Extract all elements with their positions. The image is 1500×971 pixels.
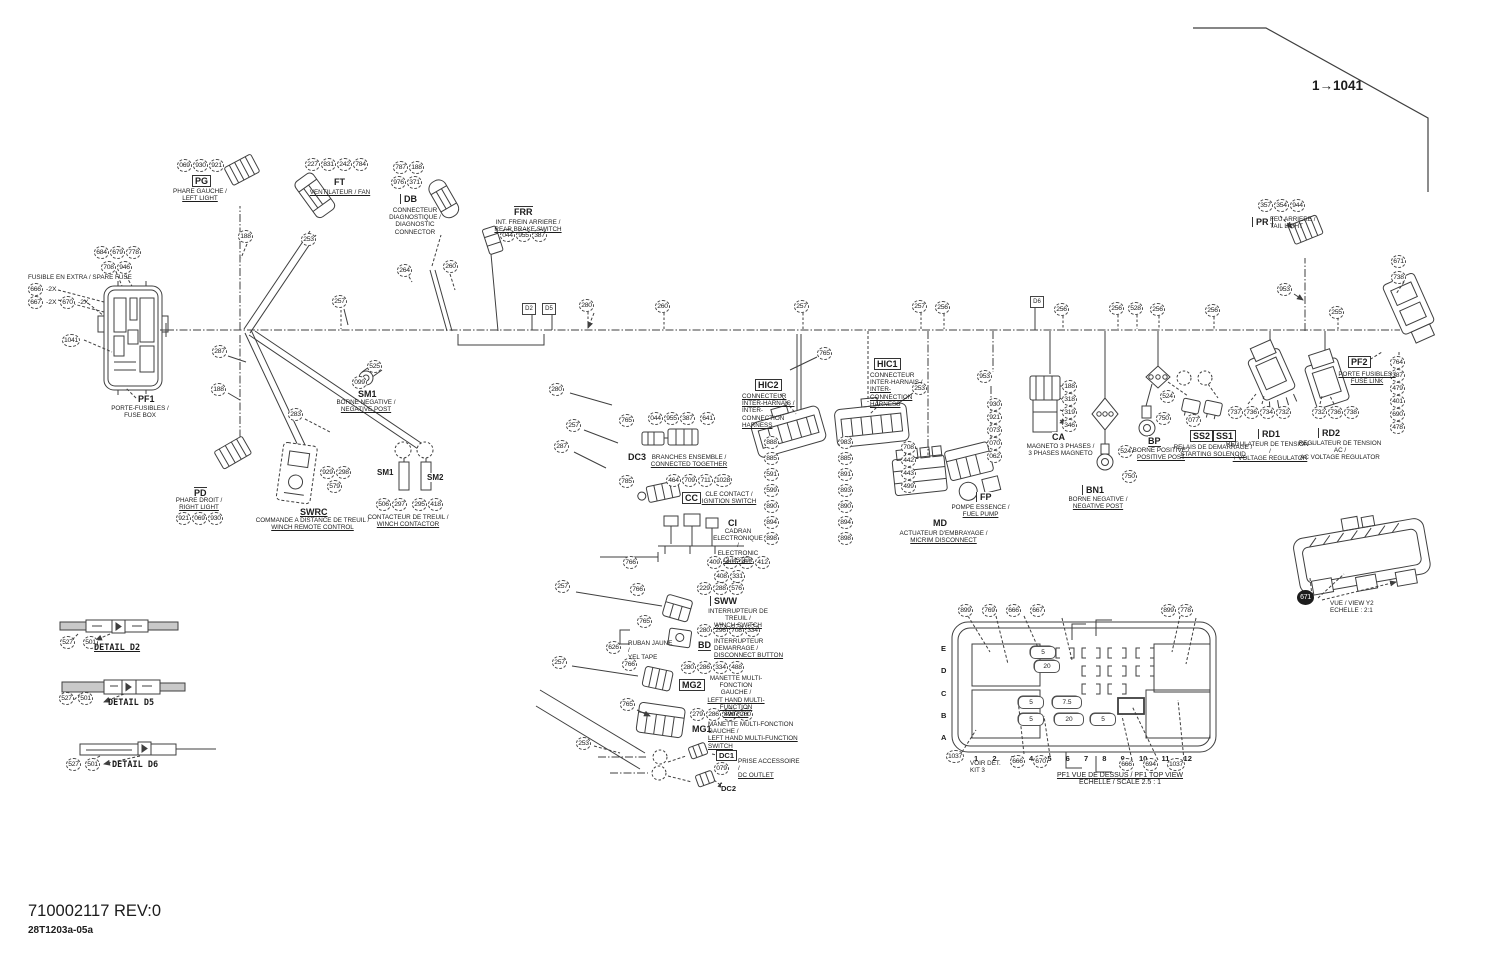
callout-chip: 953 <box>977 370 992 383</box>
pd-callouts: 921069930 <box>176 512 223 525</box>
callout-chip: 890 <box>838 500 853 513</box>
wire-callout: 188 <box>238 230 253 243</box>
callout-chip: 286 <box>697 661 712 674</box>
callout-chip: 295 <box>412 498 427 511</box>
callout-chip: 077 <box>1186 414 1201 427</box>
frr-tag: FRR <box>514 206 533 217</box>
dc3-tag: DC3 <box>628 452 646 462</box>
wire-callout: 287 <box>554 440 569 453</box>
ft-tag: FT <box>334 177 345 187</box>
rd2-label: REGULATEUR DE TENSION AC /AC VOLTAGE REG… <box>1295 440 1385 462</box>
grid-label: 7 <box>1084 754 1088 763</box>
callout-chip: 778 <box>126 246 141 259</box>
callout-chip: 073 <box>987 424 1002 437</box>
bp-tag: BP <box>1148 436 1161 447</box>
callout-chip: 930 <box>193 159 208 172</box>
callout-chip: 346 <box>1062 419 1077 432</box>
callout-chip: 736 <box>1328 406 1343 419</box>
callout-chip: 229 <box>697 582 712 595</box>
callout-chip: 983 <box>838 436 853 449</box>
callout-chip: 1037 <box>946 750 964 763</box>
pf1top-row-letters: EDCBA <box>941 644 946 742</box>
callout-chip: 750 <box>1156 412 1171 425</box>
callout-chip: 666 <box>1010 755 1025 768</box>
pr-label: FEU ARRIERE /TAIL LIGHT <box>1270 216 1328 230</box>
callout-chip: 694 <box>1143 758 1158 771</box>
mg2-label: MANETTE MULTI-FONCTIONGAUCHE /LEFT HAND … <box>697 675 775 718</box>
pf1-callouts-1: 684679778 <box>94 246 141 259</box>
mg2-callouts: 280286334488 <box>681 661 744 674</box>
wire-callout: 260 <box>655 300 670 313</box>
callout-chip: 442 <box>901 454 916 467</box>
callout-chip: 1037 <box>1167 758 1185 771</box>
callout-chip: 443 <box>901 467 916 480</box>
callout-chip: 464 <box>666 474 681 487</box>
bus-detail-marker: D6 <box>1030 296 1044 308</box>
callout-chip: 070 <box>987 437 1002 450</box>
callout-chip: 099 <box>352 376 367 389</box>
wire-callout: 953 <box>1277 283 1292 296</box>
callout-chip: 784 <box>353 158 368 171</box>
db-tag: DB <box>400 194 417 204</box>
callout-chip: 888 <box>764 436 779 449</box>
callout-chip: 387 <box>680 412 695 425</box>
wire-callout: 766 <box>623 556 638 569</box>
callout-chip: 666 <box>1119 758 1134 771</box>
pf1-spare-note: FUSIBLE EN EXTRA / SPARE FUSE <box>28 274 138 281</box>
pg-callouts: 069930921 <box>177 159 224 172</box>
bus-detail-marker: D2 <box>522 303 536 315</box>
pf2-callouts-top: 671738 <box>1391 255 1406 284</box>
callout-chip: 297 <box>392 498 407 511</box>
wire-callout: 283 <box>288 408 303 421</box>
callout-chip: 357 <box>1258 199 1273 212</box>
tape-note: RUBAN JAUNE /YEL TAPE <box>628 640 673 662</box>
callout-chip: 418 <box>428 498 443 511</box>
callout-chip: 1041 <box>62 334 80 347</box>
callout-chip: 894 <box>764 516 779 529</box>
callout-chip: 524 <box>1160 390 1175 403</box>
fuse-value: 7.5 <box>1052 696 1082 709</box>
fuse-value: 5 <box>1018 713 1044 726</box>
pf2-chain: 764387479401690478 <box>1390 356 1405 434</box>
callout-chip: 501 <box>85 758 100 771</box>
pf1top-note: VOIR DET.KIT 3 <box>970 760 1010 774</box>
callout-chip: 044 <box>648 412 663 425</box>
callout-chip: 576 <box>729 582 744 595</box>
winch-callouts-1: 506297 <box>376 498 407 511</box>
callout-chip: 764 <box>1390 356 1405 369</box>
callout-chip: 525 <box>367 360 382 373</box>
callout-chip: 591 <box>764 468 779 481</box>
wire-callout: 766 <box>630 583 645 596</box>
callout-chip: 069 <box>192 512 207 525</box>
callout-chip: 298 <box>336 466 351 479</box>
callout-chip: 890 <box>764 500 779 513</box>
callout-chip: 227 <box>305 158 320 171</box>
ca-label: MAGNETO 3 PHASES /3 PHASES MAGNETO <box>1018 443 1103 457</box>
callout-chip: 667 <box>1030 604 1045 617</box>
callout-chip: 488 <box>729 661 744 674</box>
pg-label: PHARE GAUCHE /LEFT LIGHT <box>160 188 240 202</box>
swrc-label: COMMANDE A DISTANCE DE TREUIL /WINCH REM… <box>250 517 375 531</box>
callout-chip: 899 <box>1161 604 1176 617</box>
wire-callout: 260 <box>443 260 458 273</box>
callout-chip: 334 <box>713 661 728 674</box>
detail-d6-callouts: 527501 <box>66 758 100 771</box>
callout-chip: 242 <box>337 158 352 171</box>
callout-chip: 401 <box>1390 395 1405 408</box>
callout-chip: 709 <box>682 474 697 487</box>
callout-chip: 946 <box>117 261 132 274</box>
pd-label: PHARE DROIT /RIGHT LIGHT <box>168 497 230 511</box>
callout-chip: 893 <box>838 484 853 497</box>
callout-chip: 955 <box>664 412 679 425</box>
wire-callout: 257 <box>566 419 581 432</box>
callout-chip: 885 <box>838 452 853 465</box>
callout-chip: 944 <box>1290 199 1305 212</box>
callout-chip: 079 <box>714 762 729 775</box>
wire-callout: 280 <box>549 383 564 396</box>
wire-callout: 765 <box>817 347 832 360</box>
grid-label: B <box>941 711 946 720</box>
fuse-value: 5 <box>1030 646 1056 659</box>
callout-chip: 478 <box>1390 421 1405 434</box>
wire-callout: 256 <box>1054 303 1069 316</box>
callout-chip: 288 <box>713 582 728 595</box>
callout-chip: 506 <box>376 498 391 511</box>
callout-chip: 736 <box>1244 406 1259 419</box>
callout-chip: 885 <box>764 452 779 465</box>
fuse-value: 5 <box>1090 713 1116 726</box>
rd1-tag: RD1 <box>1258 429 1280 439</box>
wire-callout: 188 <box>211 383 226 396</box>
callout-chip: 750 <box>1122 470 1137 483</box>
md-tag: MD <box>933 518 947 528</box>
db-callouts-1: 787188 <box>393 161 424 174</box>
grid-label: E <box>941 644 946 653</box>
bn1-tag: BN1 <box>1082 485 1104 495</box>
callout-chip: 734 <box>1260 406 1275 419</box>
callout-chip: 894 <box>838 516 853 529</box>
pf2-label: PORTE FUSIBLES /FUSE LINK <box>1332 371 1402 385</box>
callout-chip: 929 <box>320 466 335 479</box>
callout-chip: 626 <box>606 641 621 654</box>
rd2-callouts: 732736738 <box>1312 406 1359 419</box>
callout-chip: 499 <box>901 480 916 493</box>
cc-label: CLE CONTACT /IGNITION SWITCH <box>698 491 760 505</box>
cc-callouts: 4647097111028 <box>666 474 732 487</box>
callout-chip: 711 <box>698 474 713 487</box>
fp-tag: FP <box>976 492 992 502</box>
sm1-neg-label: BORNE NEGATIVE /NEGATIVE POST <box>330 399 402 413</box>
fp-chain: 930921073070062 <box>987 398 1002 463</box>
callout-chip: 891 <box>838 468 853 481</box>
callout-chip: 667 <box>28 296 43 309</box>
callout-chip: 188 <box>1062 380 1077 393</box>
wire-callout: 253 <box>576 737 591 750</box>
wire-callout: 785 <box>619 475 634 488</box>
detail-d2-label: DETAIL D2 <box>94 643 140 653</box>
md-label: ACTUATEUR D'EMBRAYAGE /MICRIM DISCONNECT <box>896 530 991 544</box>
wire-callout: 256 <box>1150 303 1165 316</box>
callout-chip: 671 <box>1391 255 1406 268</box>
callout-chip: 831 <box>321 158 336 171</box>
wiring-artwork <box>0 0 1500 971</box>
pf1top-callouts-top: 899769666667 <box>958 604 1045 617</box>
detail-d5-label: DETAIL D5 <box>108 698 154 708</box>
bd-tag: BD <box>698 640 711 651</box>
callout-chip: 318 <box>1062 393 1077 406</box>
wire-callout: 257 <box>332 295 347 308</box>
pg-tag: PG <box>192 175 211 187</box>
wire-callout: 765 <box>637 615 652 628</box>
callout-chip: 679 <box>110 246 125 259</box>
callout-chip: 684 <box>94 246 109 259</box>
hic1-chain: 983885891893890894898 <box>838 436 853 545</box>
detail-d6-label: DETAIL D6 <box>112 760 158 770</box>
pf1-tag: PF1 <box>138 394 155 404</box>
winch-sm1-tag: SM1 <box>377 468 393 477</box>
fp-label: POMPE ESSENCE /FUEL PUMP <box>938 504 1023 518</box>
callout-chip: 666 <box>28 283 43 296</box>
pf1-callouts-2: 708946 <box>101 261 132 274</box>
pf1-spare-1: 666-2X <box>28 283 57 296</box>
hic2-tag: HIC2 <box>755 379 782 391</box>
callout-chip: 062 <box>987 450 1002 463</box>
mg1-label: MANETTE MULTI-FONCTION GAUCHE /LEFT HAND… <box>708 721 813 750</box>
callout-chip: 069 <box>177 159 192 172</box>
wire-callout: 257 <box>912 300 927 313</box>
md-chain: 708442443499 <box>901 441 916 493</box>
detail-d2-callouts: 527501 <box>60 636 98 649</box>
grid-label: D <box>941 666 946 675</box>
callout-chip: 738 <box>1391 271 1406 284</box>
callout-chip: 280 <box>681 661 696 674</box>
pf1top-title: PF1 VUE DE DESSUS / PF1 TOP VIEWECHELLE … <box>1010 772 1230 786</box>
ft-label: VENTILATEUR / FAN <box>300 189 380 196</box>
wire-callout: 287 <box>212 345 227 358</box>
bus-detail-marker: D5 <box>542 303 556 315</box>
pf1-label: PORTE-FUSIBLES /FUSE BOX <box>104 405 176 419</box>
pf1top-callouts-bottom-right: 6666941037 <box>1119 758 1185 771</box>
grid-label: 6 <box>1066 754 1070 763</box>
callout-chip: 737 <box>1228 406 1243 419</box>
callout-chip: 921 <box>987 411 1002 424</box>
callout-chip: 641 <box>700 412 715 425</box>
callout-chip: 787 <box>393 161 408 174</box>
wire-callout: 255 <box>1329 306 1344 319</box>
wire-callout: 253 <box>301 233 316 246</box>
callout-chip: 738 <box>1344 406 1359 419</box>
dc1-tag: DC1 <box>716 750 737 761</box>
callout-chip: 670 <box>60 296 75 309</box>
grid-label: A <box>941 733 946 742</box>
sm1-neg-tag: SM1 <box>358 389 377 399</box>
callout-chip: 666 <box>1006 604 1021 617</box>
part-number: 710002117 REV:0 <box>28 902 161 921</box>
winch-label: CONTACTEUR DE TREUIL /WINCH CONTACTOR <box>358 514 458 528</box>
callout-chip: 898 <box>838 532 853 545</box>
fuse-value: 5 <box>1018 696 1044 709</box>
callout-chip: 501 <box>78 692 93 705</box>
ft-callouts: 227831242784 <box>305 158 368 171</box>
callout-chip: 690 <box>1390 408 1405 421</box>
pf1-spare-2: 667-2X <box>28 296 57 309</box>
callout-chip: 188 <box>409 161 424 174</box>
ci-tag: CI <box>728 518 737 528</box>
callout-chip: 527 <box>66 758 81 771</box>
doc-code: 28T1203a-05a <box>28 925 93 936</box>
hic1-tag: HIC1 <box>874 358 901 370</box>
callout-chip: 921 <box>209 159 224 172</box>
winch-sm2-tag: SM2 <box>427 473 443 482</box>
callout-chip: 732 <box>1312 406 1327 419</box>
wire-callout: 256 <box>1205 304 1220 317</box>
callout-chip: 1028 <box>714 474 732 487</box>
db-callouts-2: 976371 <box>391 176 422 189</box>
sww-label: INTERRUPTEUR DE TREUIL /WINCH SWITCH <box>698 608 778 630</box>
wire-callout: 765 <box>619 414 634 427</box>
fuse-value: 20 <box>1054 713 1084 726</box>
callout-chip: 671 <box>1297 590 1314 605</box>
callout-chip: 930 <box>208 512 223 525</box>
ss2-tag: SS2 <box>1190 430 1213 442</box>
grid-label: 8 <box>1102 754 1106 763</box>
ci-label: CADRANELECTRONIQUE /ELECTRONICCLUSTER <box>712 528 764 564</box>
winch-callouts-2: 295418 <box>412 498 443 511</box>
sww-callouts: 229288576 <box>697 582 744 595</box>
callout-chip: 769 <box>982 604 997 617</box>
callout-chip: 579 <box>327 480 342 493</box>
wire-callout: 257 <box>552 656 567 669</box>
pf1top-callouts-top-right: 899778 <box>1161 604 1193 617</box>
dc1-label: PRISE ACCESSOIRE /DC OUTLET <box>738 758 800 780</box>
callout-chip: 976 <box>391 176 406 189</box>
rd2-tag: RD2 <box>1318 428 1340 438</box>
rd1-callouts: 737736734732 <box>1228 406 1291 419</box>
wiring-diagram-page: { "page":{"corner_ref":"1→1041","part_nu… <box>0 0 1500 971</box>
y2-view-label: VUE / VIEW Y2ECHELLE : 2:1 <box>1330 600 1400 614</box>
callout-chip: 930 <box>987 398 1002 411</box>
callout-chip: 670 <box>1033 755 1048 768</box>
dc3-label: BRANCHES ENSEMBLE /CONNECTED TOGETHER <box>650 454 728 468</box>
callout-chip: 371 <box>407 176 422 189</box>
wire-callout: 257 <box>555 580 570 593</box>
fuse-value: 20 <box>1034 660 1060 673</box>
swrc-tag: SWRC <box>300 507 328 517</box>
wire-callout: 257 <box>794 300 809 313</box>
bd-label: INTERRUPTEUR DEMARRAGE /DISCONNECT BUTTO… <box>714 638 789 660</box>
bn1-label: BORNE NEGATIVE /NEGATIVE POST <box>1058 496 1138 510</box>
dc3-callouts: 044955387 <box>648 412 695 425</box>
callout-chip: 708 <box>101 261 116 274</box>
frr-label: INT. FREIN ARRIERE /REAR BRAKE SWITCH <box>488 219 568 233</box>
wire-callout: 280 <box>579 299 594 312</box>
db-label: CONNECTEURDIAGNOSTIQUE /DIAGNOSTICCONNEC… <box>375 207 455 236</box>
wire-callout: 256 <box>1109 302 1124 315</box>
swrc-callouts-2: 579 <box>327 480 342 493</box>
callout-chip: 778 <box>1178 604 1193 617</box>
callout-chip: 599 <box>764 484 779 497</box>
wire-callout: 256 <box>935 301 950 314</box>
callout-chip: 708 <box>901 441 916 454</box>
callout-chip: 527 <box>59 692 74 705</box>
pf2-tag: PF2 <box>1348 356 1371 368</box>
ca-tag: CA <box>1052 432 1065 442</box>
hic1-label: CONNECTEURINTER-HARNAIS /INTER-CONNECTIO… <box>870 372 925 408</box>
grid-label: C <box>941 689 946 698</box>
pf1top-callouts-bottom: 666670 <box>1010 755 1048 768</box>
callout-chip: 898 <box>764 532 779 545</box>
callout-chip: 354 <box>1274 199 1289 212</box>
callout-chip: 899 <box>958 604 973 617</box>
hic2-label: CONNECTEURINTER-HARNAIS /INTER-CONNECTIO… <box>742 393 797 429</box>
callout-chip: 732 <box>1276 406 1291 419</box>
pr-callouts: 357354944 <box>1258 199 1305 212</box>
wire-callout: 528 <box>1128 302 1143 315</box>
swrc-callouts-1: 929298 <box>320 466 351 479</box>
sww-tag: SWW <box>710 596 737 606</box>
wire-callout: 765 <box>620 698 635 711</box>
ca-chain: 188318319346 <box>1062 380 1077 432</box>
callout-chip: 319 <box>1062 406 1077 419</box>
hic2-chain: 888885591599890894898 <box>764 436 779 545</box>
callout-chip: 921 <box>176 512 191 525</box>
dc2-tag: DC2 <box>721 784 736 793</box>
corner-reference: 1→1041 <box>1312 78 1363 93</box>
wire-callout: 264 <box>397 264 412 277</box>
pf1-spare-3: 670-2X <box>60 296 89 309</box>
detail-d5-callouts: 527501 <box>59 692 93 705</box>
callout-chip: 527 <box>60 636 75 649</box>
